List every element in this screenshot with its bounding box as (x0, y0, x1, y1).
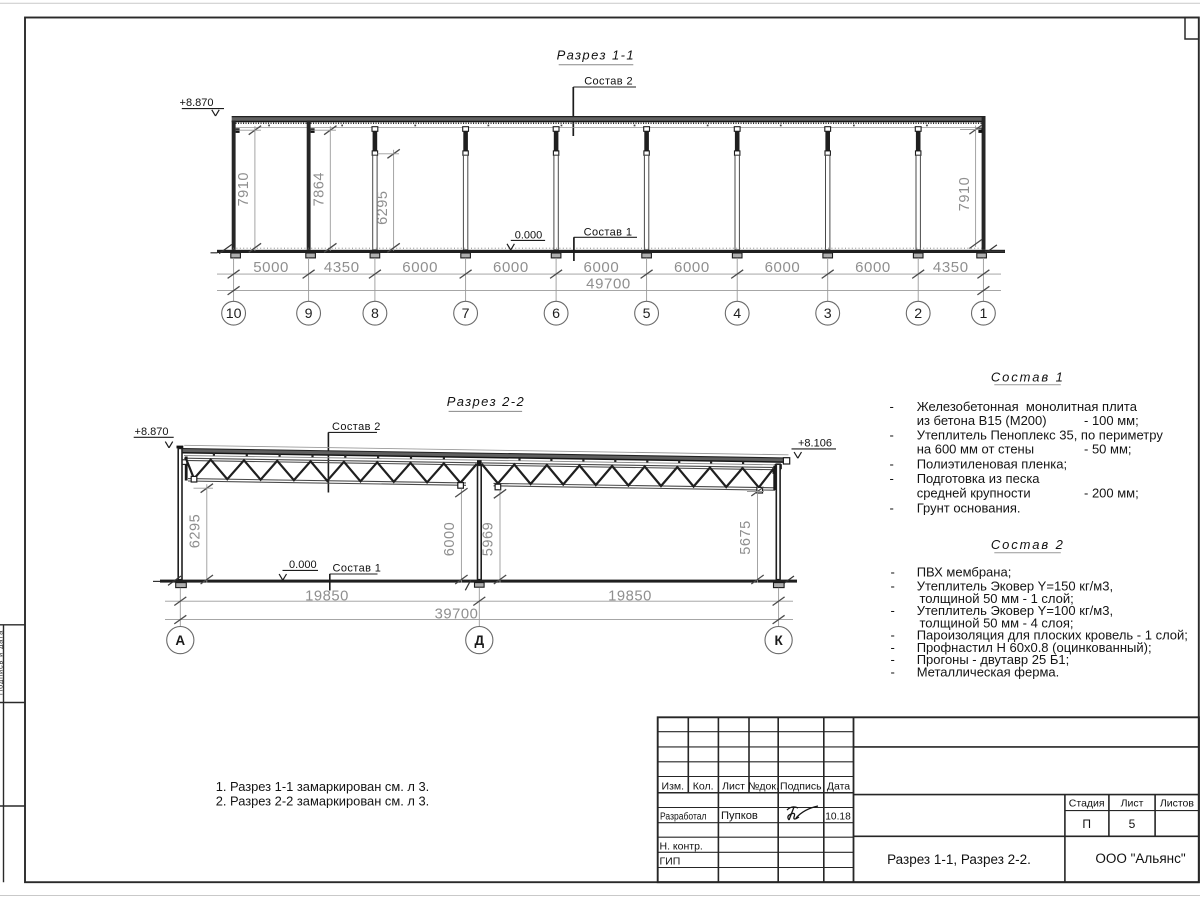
svg-text:6295: 6295 (187, 514, 203, 548)
svg-text:19850: 19850 (608, 588, 652, 604)
svg-text:Состав 2: Состав 2 (584, 75, 633, 87)
svg-text:4: 4 (733, 306, 741, 322)
svg-text:на 600 мм от стены: на 600 мм от стены (917, 442, 1034, 457)
svg-text:5969: 5969 (481, 522, 497, 556)
svg-text:ООО "Альянс": ООО "Альянс" (1095, 851, 1185, 866)
svg-text:Состав 1: Состав 1 (333, 562, 382, 574)
svg-text:19850: 19850 (305, 588, 349, 604)
svg-text:Дата: Дата (827, 780, 850, 792)
svg-text:1. Разрез 1-1 замаркирован см.: 1. Разрез 1-1 замаркирован см. л 3. (216, 779, 430, 794)
svg-text:6000: 6000 (584, 259, 620, 276)
svg-text:-: - (890, 456, 894, 471)
svg-text:Состав 1: Состав 1 (991, 369, 1065, 384)
svg-text:Утеплитель Пеноплекс 35, по пе: Утеплитель Пеноплекс 35, по периметру (917, 428, 1164, 443)
svg-text:Подпись: Подпись (780, 780, 822, 792)
svg-text:-: - (890, 500, 894, 515)
svg-text:Разработал: Разработал (660, 811, 707, 823)
svg-text:ГИП: ГИП (660, 856, 681, 868)
svg-text:Состав 2: Состав 2 (332, 421, 381, 433)
svg-text:4350: 4350 (933, 259, 969, 276)
svg-text:10.18: 10.18 (825, 811, 851, 822)
svg-text:+8.870: +8.870 (135, 426, 169, 438)
svg-text:Состав 2: Состав 2 (991, 537, 1065, 552)
svg-text:6000: 6000 (402, 259, 438, 276)
svg-text:6000: 6000 (442, 522, 458, 556)
svg-text:Д: Д (474, 633, 484, 648)
svg-text:ПВХ мембрана;: ПВХ мембрана; (917, 565, 1012, 580)
svg-text:6295: 6295 (375, 190, 391, 224)
svg-text:Стадия: Стадия (1069, 798, 1105, 810)
svg-text:5675: 5675 (738, 520, 754, 554)
svg-text:К: К (774, 633, 783, 648)
svg-text:6000: 6000 (765, 259, 801, 276)
svg-text:5: 5 (643, 306, 651, 322)
svg-text:49700: 49700 (586, 275, 631, 292)
svg-text:6000: 6000 (855, 259, 891, 276)
svg-text:А: А (175, 633, 185, 648)
svg-text:-: - (891, 603, 895, 618)
svg-text:5000: 5000 (253, 259, 289, 276)
svg-text:7: 7 (462, 306, 470, 322)
svg-text:4350: 4350 (324, 259, 360, 276)
svg-text:Листов: Листов (1160, 798, 1195, 810)
svg-text:Подпись и дата: Подпись и дата (0, 630, 5, 695)
svg-text:0.000: 0.000 (515, 229, 543, 241)
svg-text:средней крупности: средней крупности (917, 485, 1031, 500)
svg-text:-: - (891, 664, 895, 679)
svg-text:7910: 7910 (236, 172, 252, 206)
svg-text:- 100 мм;: - 100 мм; (1084, 413, 1139, 428)
svg-text:39700: 39700 (435, 606, 479, 622)
svg-text:Разрез 2-2: Разрез 2-2 (447, 394, 525, 409)
svg-text:Грунт основания.: Грунт основания. (917, 500, 1021, 515)
svg-text:из бетона В15 (М200): из бетона В15 (М200) (917, 413, 1047, 428)
svg-text:Подготовка из песка: Подготовка из песка (917, 471, 1041, 486)
svg-text:8: 8 (371, 306, 379, 322)
svg-text:Металлическая ферма.: Металлическая ферма. (917, 664, 1060, 679)
svg-text:2: 2 (914, 306, 922, 322)
svg-text:№док.: №док. (748, 780, 779, 792)
svg-text:Изм.: Изм. (662, 780, 685, 792)
svg-text:Разрез 1-1: Разрез 1-1 (557, 47, 635, 62)
svg-text:Лист: Лист (722, 780, 745, 792)
svg-text:0.000: 0.000 (289, 559, 317, 571)
svg-text:-: - (890, 399, 894, 414)
svg-text:3: 3 (824, 306, 832, 322)
svg-text:1: 1 (979, 306, 987, 322)
svg-text:5: 5 (1129, 817, 1136, 831)
svg-text:7910: 7910 (957, 177, 973, 211)
svg-text:- 200 мм;: - 200 мм; (1084, 485, 1139, 500)
svg-text:Кол.: Кол. (693, 780, 714, 792)
svg-text:-: - (891, 565, 895, 580)
svg-text:7864: 7864 (312, 172, 328, 206)
svg-text:Разрез 1-1, Разрез 2-2.: Разрез 1-1, Разрез 2-2. (887, 852, 1031, 867)
svg-text:Лист: Лист (1121, 798, 1144, 810)
svg-text:6: 6 (552, 306, 560, 322)
svg-text:10: 10 (226, 306, 242, 322)
svg-text:6000: 6000 (493, 259, 529, 276)
svg-text:Полиэтиленовая пленка;: Полиэтиленовая пленка; (917, 456, 1067, 471)
svg-text:9: 9 (305, 306, 313, 322)
svg-text:-: - (890, 428, 894, 443)
svg-text:- 50 мм;: - 50 мм; (1084, 442, 1132, 457)
svg-text:+8.870: +8.870 (180, 97, 214, 109)
svg-text:-: - (890, 471, 894, 486)
svg-text:Н. контр.: Н. контр. (660, 841, 703, 853)
svg-text:6000: 6000 (674, 259, 710, 276)
svg-text:2. Разрез 2-2 замаркирован см.: 2. Разрез 2-2 замаркирован см. л 3. (216, 794, 430, 809)
svg-text:-: - (891, 579, 895, 594)
svg-text:Железобетонная монолитная пли: Железобетонная монолитная плита (917, 399, 1138, 414)
svg-text:П: П (1082, 817, 1091, 831)
svg-text:+8.106: +8.106 (798, 437, 832, 449)
svg-text:Пупков: Пупков (721, 810, 758, 822)
